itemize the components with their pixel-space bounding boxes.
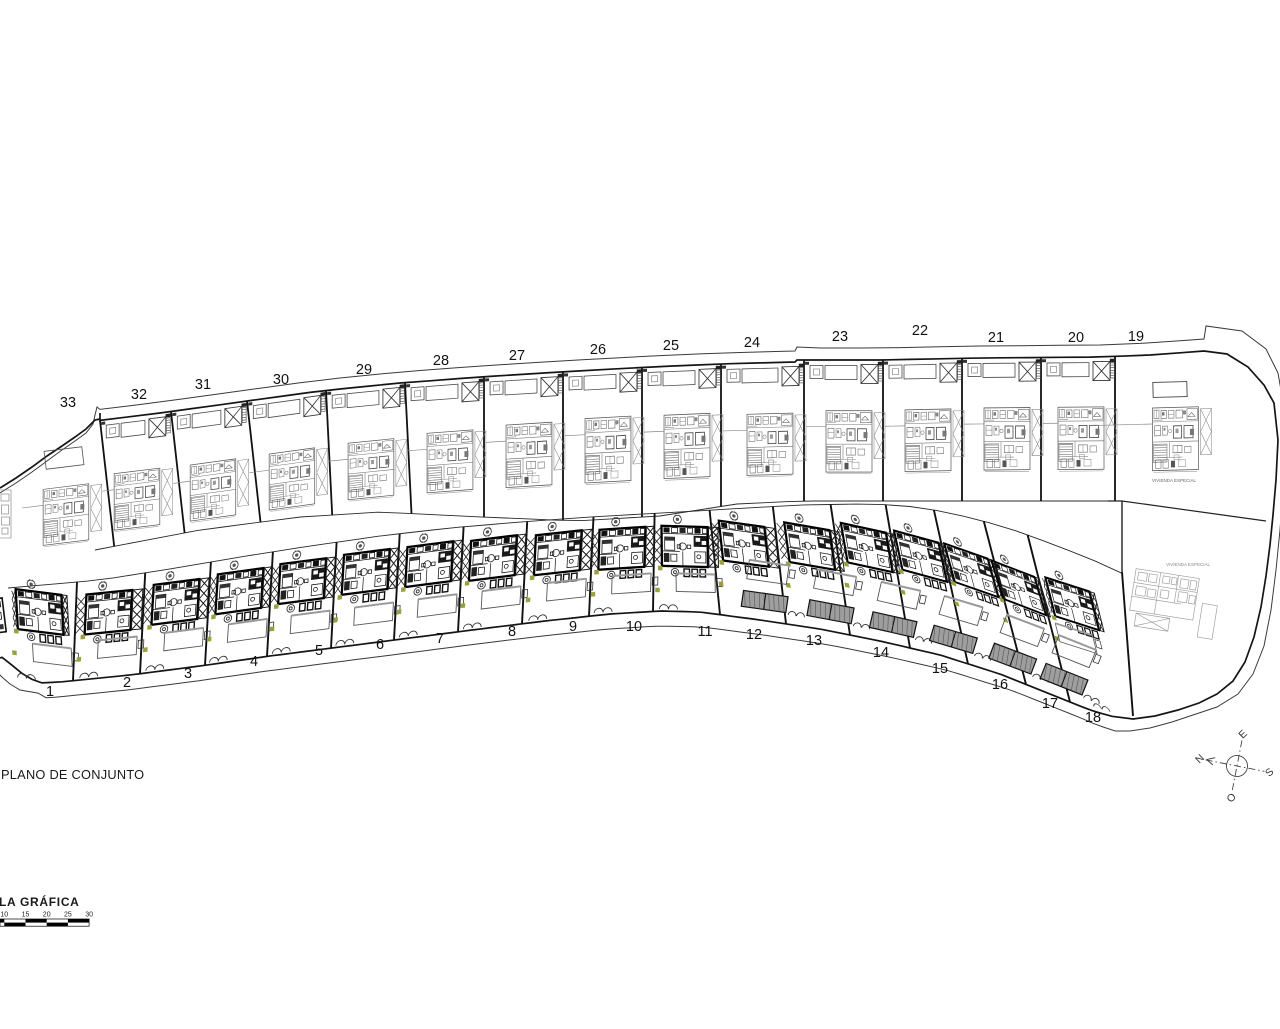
svg-text:27: 27 <box>509 348 525 364</box>
svg-text:24: 24 <box>744 335 760 351</box>
svg-text:16: 16 <box>992 677 1008 693</box>
svg-text:7: 7 <box>436 631 444 647</box>
svg-text:29: 29 <box>356 362 372 378</box>
svg-text:15: 15 <box>932 661 948 677</box>
svg-text:28: 28 <box>433 353 449 369</box>
svg-text:20: 20 <box>1068 330 1084 346</box>
svg-text:18: 18 <box>1085 710 1101 726</box>
svg-text:19: 19 <box>1128 329 1144 345</box>
svg-text:23: 23 <box>832 329 848 345</box>
svg-text:VIVIENDA ESPECIAL: VIVIENDA ESPECIAL <box>1152 478 1197 483</box>
svg-text:5: 5 <box>315 643 323 659</box>
svg-text:33: 33 <box>60 395 76 411</box>
svg-text:10: 10 <box>626 619 642 635</box>
svg-text:LA GRÁFICA: LA GRÁFICA <box>0 894 80 909</box>
svg-text:31: 31 <box>195 377 211 393</box>
svg-text:25: 25 <box>64 912 72 919</box>
svg-text:30: 30 <box>85 912 93 919</box>
svg-text:4: 4 <box>250 654 258 670</box>
svg-text:12: 12 <box>746 627 762 643</box>
svg-text:14: 14 <box>873 645 889 661</box>
svg-text:15: 15 <box>22 912 30 919</box>
svg-text:PLANO DE CONJUNTO: PLANO DE CONJUNTO <box>1 767 144 782</box>
svg-text:32: 32 <box>131 387 147 403</box>
svg-text:21: 21 <box>988 330 1004 346</box>
svg-text:3: 3 <box>184 666 192 682</box>
svg-text:6: 6 <box>376 637 384 653</box>
svg-text:9: 9 <box>569 619 577 635</box>
svg-text:13: 13 <box>806 633 822 649</box>
svg-text:1: 1 <box>46 684 54 700</box>
svg-text:20: 20 <box>43 912 51 919</box>
svg-text:2: 2 <box>123 675 131 691</box>
svg-text:17: 17 <box>1042 696 1058 712</box>
svg-text:30: 30 <box>273 372 289 388</box>
svg-text:VIVIENDA ESPECIAL: VIVIENDA ESPECIAL <box>1166 562 1211 567</box>
svg-text:26: 26 <box>590 342 606 358</box>
svg-text:22: 22 <box>912 323 928 339</box>
svg-text:25: 25 <box>663 338 679 354</box>
svg-text:10: 10 <box>0 912 8 919</box>
svg-text:8: 8 <box>508 624 516 640</box>
svg-text:11: 11 <box>697 624 712 640</box>
